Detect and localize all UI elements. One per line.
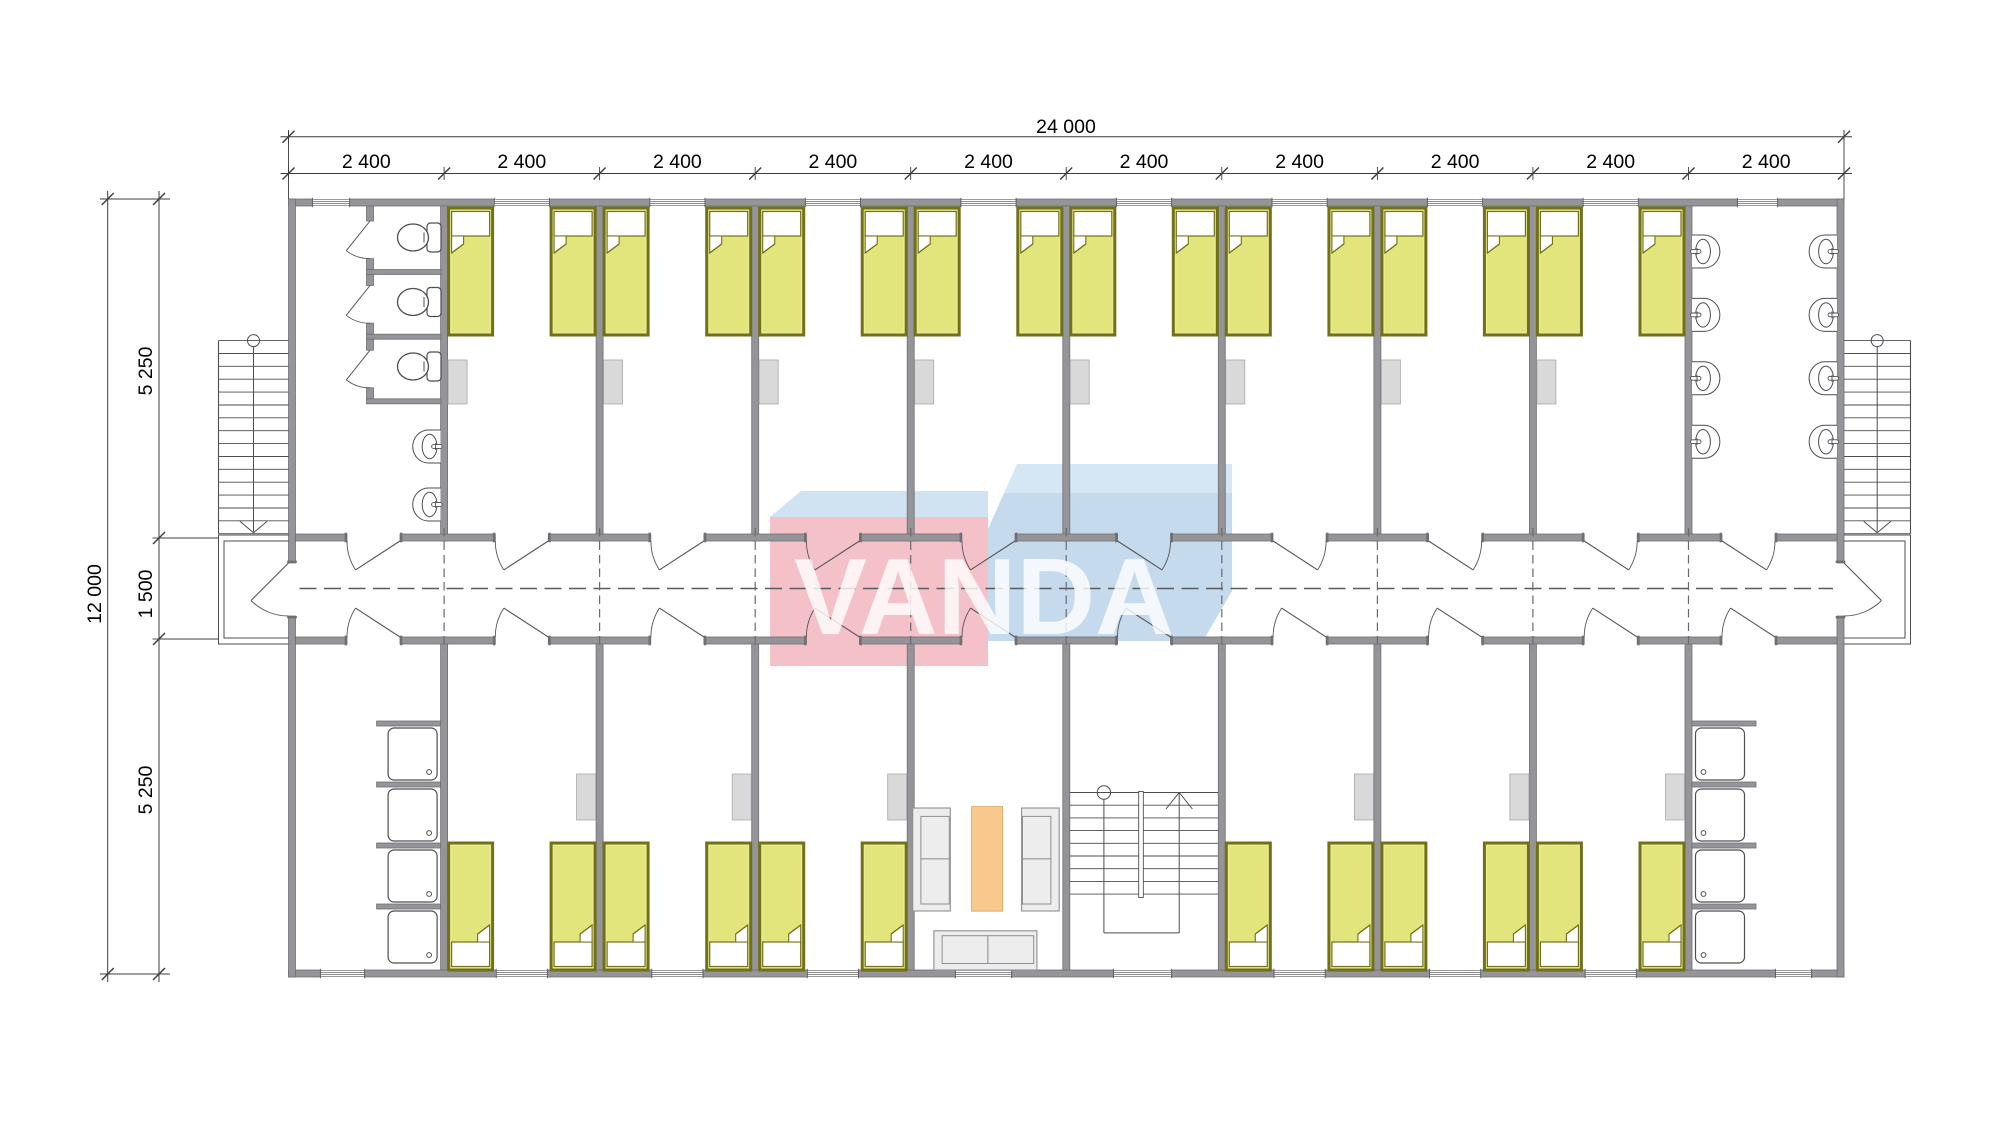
svg-text:2 400: 2 400	[342, 151, 391, 173]
svg-text:2 400: 2 400	[808, 151, 857, 173]
svg-text:12 000: 12 000	[84, 564, 106, 624]
svg-text:5 250: 5 250	[135, 765, 157, 814]
svg-text:VANDA: VANDA	[794, 536, 1174, 658]
svg-text:2 400: 2 400	[1742, 151, 1791, 173]
svg-text:2 400: 2 400	[1586, 151, 1635, 173]
svg-text:2 400: 2 400	[1120, 151, 1169, 173]
svg-text:2 400: 2 400	[497, 151, 546, 173]
svg-text:2 400: 2 400	[1275, 151, 1324, 173]
svg-text:2 400: 2 400	[964, 151, 1013, 173]
svg-text:2 400: 2 400	[1431, 151, 1480, 173]
svg-text:5 250: 5 250	[135, 346, 157, 395]
svg-text:1 500: 1 500	[135, 569, 157, 618]
svg-text:24 000: 24 000	[1036, 116, 1096, 138]
svg-text:2 400: 2 400	[653, 151, 702, 173]
